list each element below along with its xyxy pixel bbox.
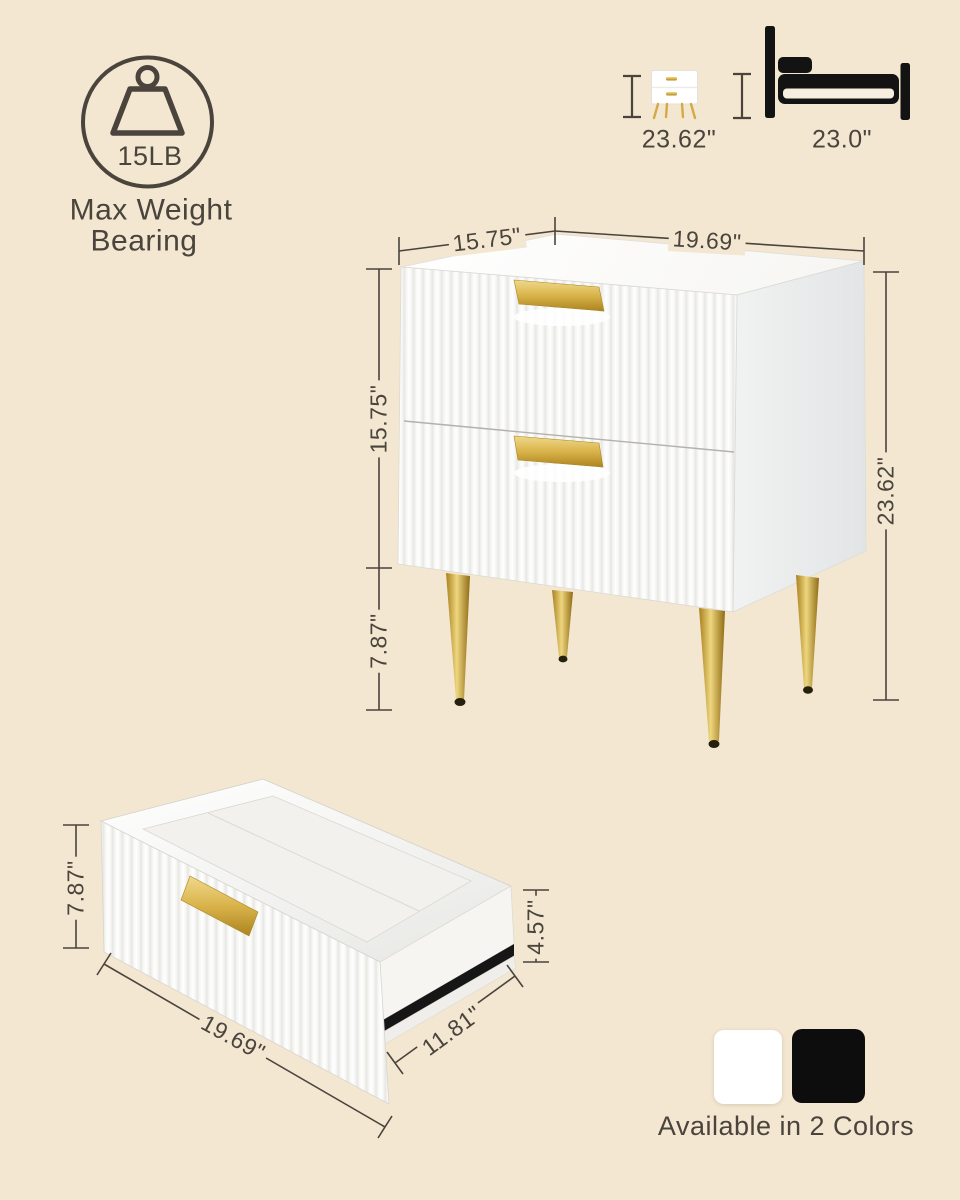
dim-label-leg-height: 7.87" — [366, 609, 391, 672]
bed-icon — [765, 26, 910, 120]
nightstand-height-icon — [623, 71, 751, 119]
dim-label-drawer-inner-depth: 4.57" — [523, 895, 548, 958]
nightstand-side-face — [733, 261, 866, 612]
drawer-illustration — [101, 779, 516, 1104]
compare-nightstand-height-label: 23.62" — [638, 126, 720, 154]
dim-label-drawer-front-height: 7.87" — [63, 856, 88, 919]
main-nightstand-illustration — [398, 234, 866, 748]
dim-label-top-width: 19.69" — [668, 226, 746, 256]
left-ibeam-icon — [623, 76, 641, 117]
weight-icon — [113, 89, 182, 133]
weight-badge-caption-line2: Bearing — [87, 225, 202, 258]
compare-bed-height-label: 23.0" — [808, 126, 876, 154]
weight-badge-caption-line1: Max Weight — [66, 194, 237, 227]
color-swatch-white — [714, 1030, 782, 1104]
dim-label-cabinet-height: 15.75" — [366, 381, 391, 458]
weight-badge-value: 15LB — [113, 142, 186, 172]
color-options-caption: Available in 2 Colors — [654, 1112, 918, 1142]
gold-legs — [446, 573, 819, 748]
right-ibeam-icon — [733, 74, 751, 118]
infographic-canvas: 15LB Max Weight Bearing 23.62" 23.0" 15.… — [0, 0, 960, 1200]
dim-label-overall-height: 23.62" — [873, 453, 898, 530]
weight-icon-knob — [138, 68, 157, 87]
mini-nightstand-icon — [652, 71, 698, 119]
bed-footboard — [901, 63, 911, 120]
color-swatch-black — [792, 1029, 865, 1103]
bed-pillow — [778, 57, 812, 73]
